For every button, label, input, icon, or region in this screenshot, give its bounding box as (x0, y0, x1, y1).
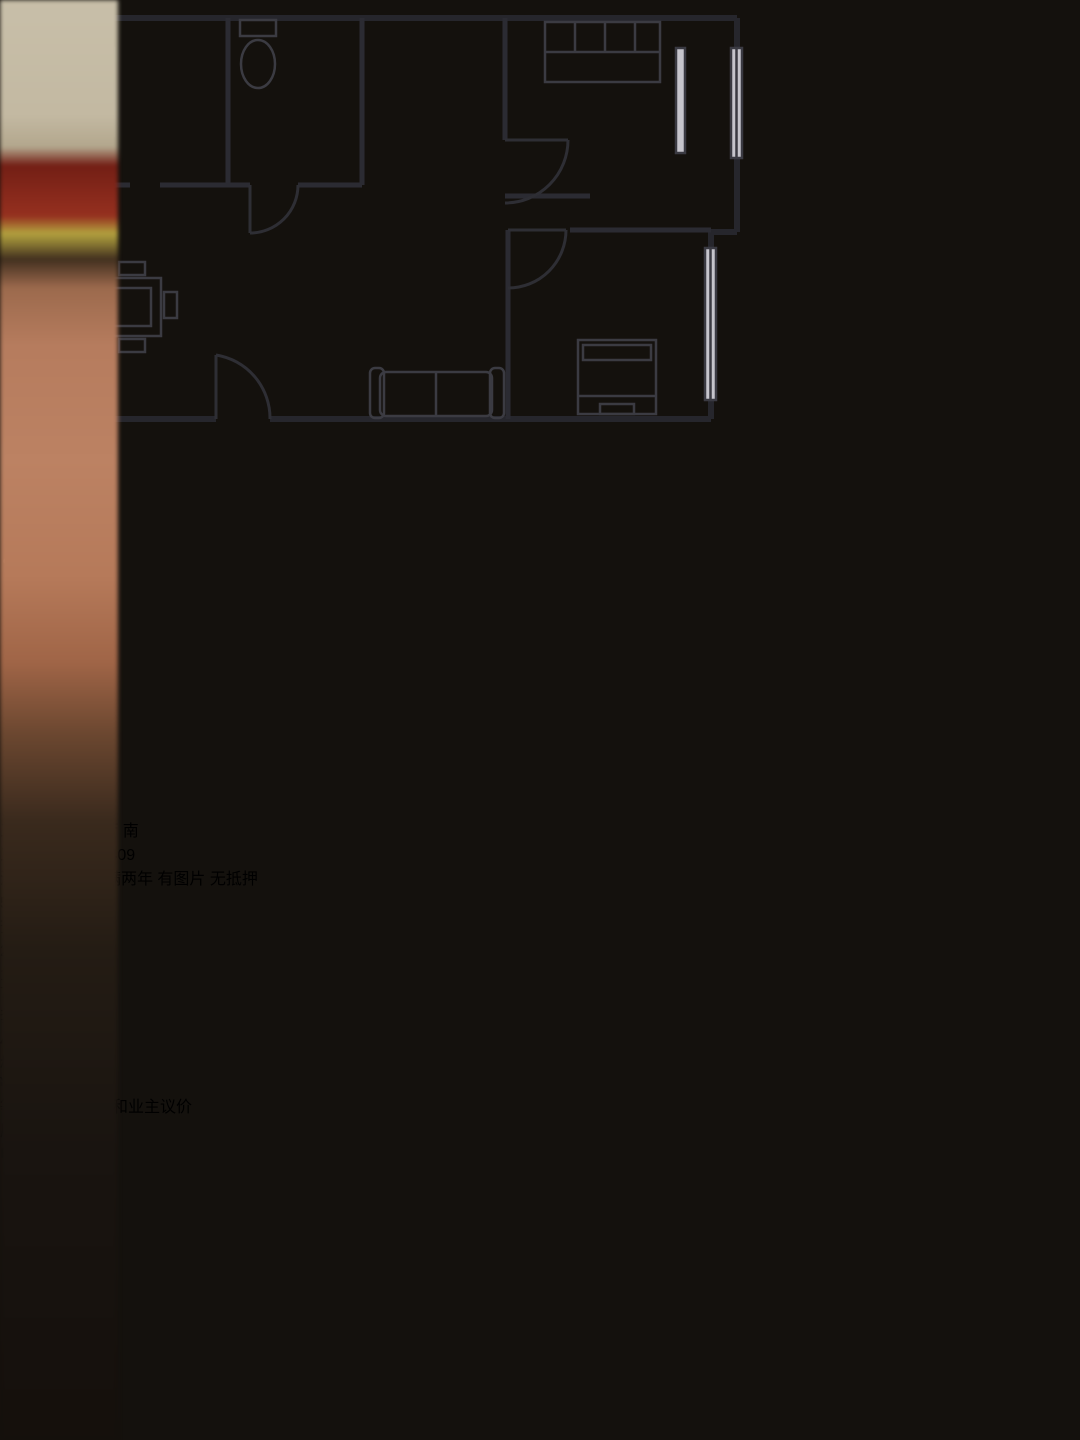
image-toolbar (0, 592, 1080, 817)
back-button[interactable] (0, 535, 1080, 592)
furniture (78, 20, 660, 418)
stat-label: 1厨1阳 (0, 961, 1080, 985)
north-compass-button[interactable] (0, 592, 1080, 667)
floor-price-button[interactable]: 查看底价 ! (0, 913, 1080, 937)
negotiate-hint: 等待降价？试试和业主议价 (0, 1093, 1080, 1117)
stat-value: 2室2厅1卫 (0, 937, 1080, 961)
history-price-button[interactable]: 历史价格 (0, 1117, 1080, 1141)
floorplan-drawing (0, 0, 900, 530)
favorite-button[interactable] (0, 667, 1080, 742)
listing-price: 51 万 (0, 889, 1080, 913)
share-button[interactable] (0, 742, 1080, 817)
stat-label: 套内73.00m² (0, 1003, 1080, 1027)
doors (216, 140, 568, 419)
toilet (240, 20, 276, 88)
bottom-action-bar: ¥ 等待降价？试试和业主议价 历史价格 申请调价 (0, 1075, 1080, 1165)
tag-item: 无抵押 (210, 871, 258, 888)
photo-background (0, 0, 118, 1440)
price-row: 51 万 查看底价 ! (0, 889, 1080, 937)
stat-label: 楼层 (0, 1051, 1080, 1075)
stat-layout: 2室2厅1卫 1厨1阳 (0, 937, 1080, 985)
apply-price-change-button[interactable]: 申请调价 (0, 1141, 1080, 1165)
photo-of-phone: 三化二村 2室2厅 南 三化二村-27幢-409 淘宝池 可落户 满两年 有图片… (0, 0, 1080, 1440)
yuan-bubble-icon: ¥ (0, 1075, 1080, 1093)
bed (578, 340, 656, 414)
tag-item: 有图片 (157, 871, 205, 888)
stat-area: 76m² 套内73.00m² (0, 985, 1080, 1027)
stat-value: 76m² (0, 985, 1080, 1003)
listing-address: 三化二村-27幢-409 (0, 841, 1080, 865)
listing-details: 三化二村 2室2厅 南 三化二村-27幢-409 淘宝池 可落户 满两年 有图片… (0, 817, 1080, 1165)
sofa (370, 368, 504, 418)
bar-buttons: 历史价格 申请调价 (0, 1117, 1080, 1165)
stats-row: 2室2厅1卫 1厨1阳 76m² 套内73.00m² 4/6层 楼层 (0, 937, 1080, 1075)
phone-frame: 三化二村 2室2厅 南 三化二村-27幢-409 淘宝池 可落户 满两年 有图片… (0, 0, 1080, 1165)
tag-row: 淘宝池 可落户 满两年 有图片 无抵押 (0, 865, 1080, 889)
floorplan-image[interactable] (0, 0, 1080, 817)
wardrobe (545, 22, 660, 82)
phone-screen: 三化二村 2室2厅 南 三化二村-27幢-409 淘宝池 可落户 满两年 有图片… (0, 0, 1080, 1165)
stat-floor: 4/6层 楼层 (0, 1027, 1080, 1075)
stat-value: 4/6层 (0, 1027, 1080, 1051)
page-title: 三化二村 2室2厅 南 (0, 817, 1080, 841)
